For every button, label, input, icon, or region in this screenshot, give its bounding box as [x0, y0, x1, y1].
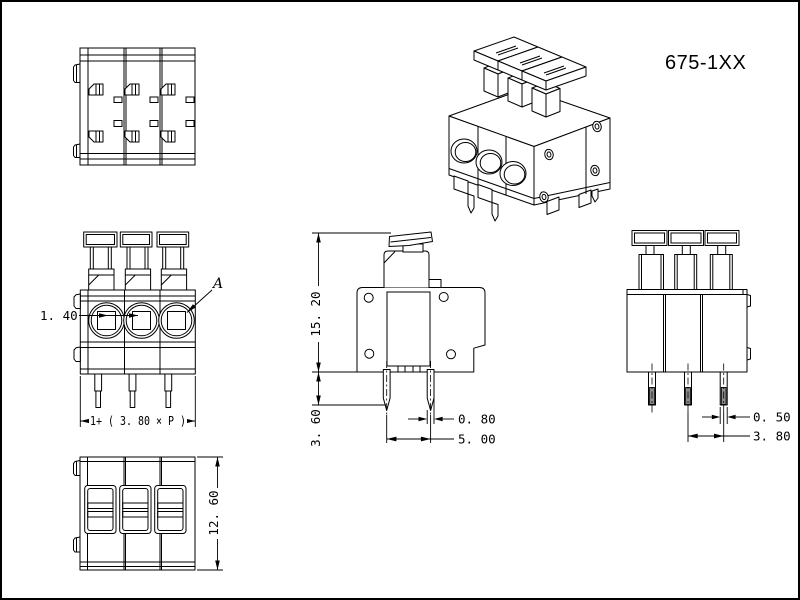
dim-pin-spacing: 5. 00: [458, 432, 496, 447]
rear-view: 0. 50 3. 80: [627, 231, 791, 444]
dim-pole-pitch: 3. 80: [753, 429, 791, 444]
wire-entry-openings: [89, 303, 195, 339]
part-number-label: 675-1XX: [665, 52, 746, 75]
dim-pin-thickness: 0. 50: [753, 410, 791, 425]
dim-total-height: 15. 20: [308, 291, 323, 336]
side-view: 15. 20 3. 60 0. 8: [307, 232, 496, 447]
mounting-tab: [74, 347, 80, 362]
solder-pins: [95, 374, 172, 408]
mounting-tab: [74, 294, 80, 309]
button-slots: [85, 486, 186, 534]
housing-hole: [365, 349, 374, 358]
dim-pin-width: 0. 80: [458, 412, 496, 427]
push-buttons: [84, 232, 189, 290]
dim-pin-protrusion: 3. 60: [308, 409, 323, 447]
isometric-view: [449, 37, 610, 221]
front-view: 1. 40 A 1+ ( 3. 80 × P ): [40, 232, 223, 428]
solder-pin: [468, 194, 474, 213]
dim-body-depth: 12. 60: [206, 490, 221, 535]
mounting-tab: [747, 295, 751, 308]
bottom-view: 12. 60: [74, 457, 224, 570]
mounting-tab: [747, 348, 751, 361]
solder-pin: [592, 189, 598, 202]
housing-hole: [439, 293, 448, 302]
technical-drawing-canvas: 1. 40 A 1+ ( 3. 80 × P ) 15. 20: [2, 2, 800, 600]
detail-label-a: A: [211, 276, 223, 292]
housing-hole: [364, 293, 373, 302]
dim-wire-opening: 1. 40: [40, 308, 78, 323]
drawing-sheet: 1. 40 A 1+ ( 3. 80 × P ) 15. 20: [0, 0, 800, 600]
solder-pin: [492, 203, 498, 222]
top-view: [74, 48, 196, 165]
dim-total-width: 1+ ( 3. 80 × P ): [90, 413, 186, 428]
housing-hole: [447, 350, 456, 359]
push-buttons: [632, 231, 739, 290]
